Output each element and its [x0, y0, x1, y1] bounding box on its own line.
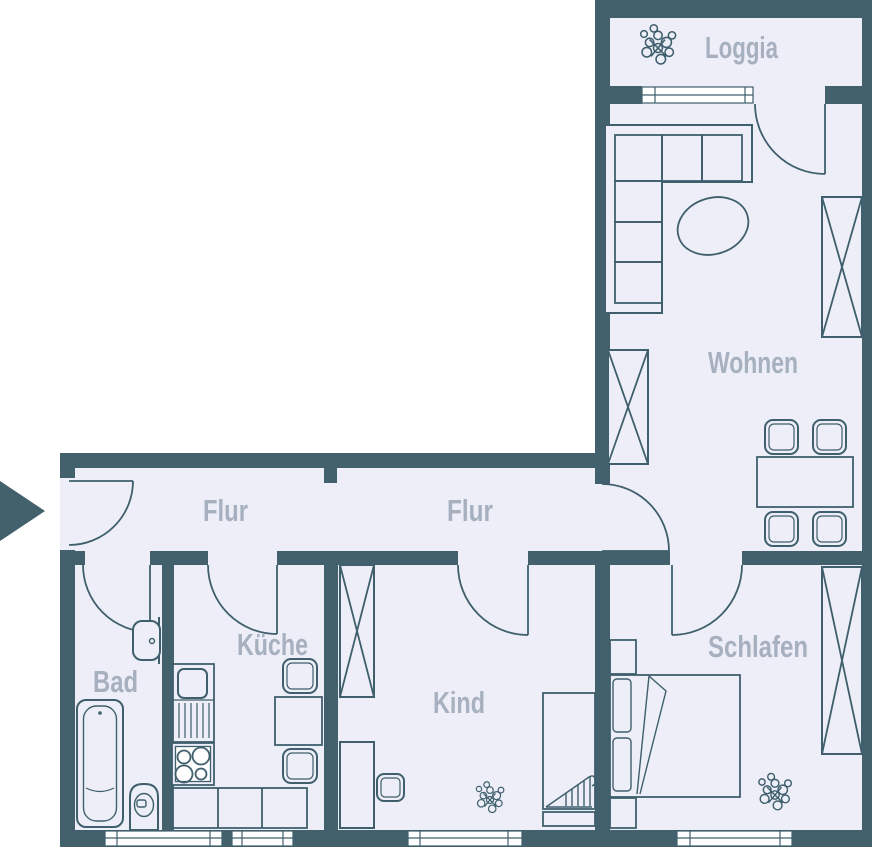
wall-top: [595, 0, 872, 18]
dining-table: [757, 457, 853, 507]
wall-kueche-kind: [324, 565, 338, 830]
room-label-flur-rechts: Flur: [447, 493, 493, 528]
nightstand: [610, 640, 636, 674]
room-label-schlafen: Schlafen: [708, 629, 808, 664]
room-label-flur-links: Flur: [203, 493, 248, 528]
room-label-kueche: Küche: [237, 627, 308, 662]
stove: [172, 743, 214, 785]
room-label-loggia: Loggia: [705, 30, 779, 65]
wardrobe: [822, 197, 862, 337]
wall-pillar: [324, 468, 337, 483]
desk: [340, 742, 374, 828]
room-label-bad: Bad: [93, 664, 138, 699]
room-label-wohnen: Wohnen: [708, 345, 798, 380]
window-schlafen: [677, 831, 792, 846]
wall-mid-seg2: [150, 551, 208, 565]
wardrobe: [822, 567, 862, 754]
kitchen-sink-unit: [173, 664, 214, 742]
wall-loggia-stub-right: [825, 86, 862, 104]
double-bed: [610, 675, 740, 797]
nightstand: [610, 798, 636, 828]
window-kueche: [232, 831, 293, 846]
room-label-kind: Kind: [433, 685, 485, 720]
wall-mid-seg1: [60, 551, 85, 565]
window-loggia: [642, 87, 753, 103]
bathroom-sink: [133, 617, 160, 664]
wall-flur-top: [60, 453, 610, 468]
wall-left-outer-lower: [60, 550, 75, 847]
wall-loggia-stub-left: [610, 86, 642, 104]
toilet: [130, 784, 158, 830]
floor-plan: Loggia Wohnen Flur Flur Bad Küche Kind S…: [0, 0, 872, 847]
window-bad: [105, 831, 222, 846]
entrance-arrow-icon: [0, 481, 45, 541]
floor-plan-svg: Loggia Wohnen Flur Flur Bad Küche Kind S…: [0, 0, 872, 847]
wall-mid-seg4: [528, 551, 670, 565]
wardrobe: [340, 565, 374, 697]
bathtub: [77, 700, 123, 827]
wall-left-outer-upper: [60, 453, 75, 478]
wall-mid-seg5: [742, 551, 872, 565]
wall-right: [862, 0, 872, 847]
wall-mid-seg3: [277, 551, 458, 565]
child-bed: [543, 693, 595, 826]
wall-left-column-lower: [595, 551, 610, 847]
wardrobe: [608, 350, 648, 464]
kitchen-counter: [173, 788, 307, 828]
window-kind: [408, 831, 522, 846]
kitchen-table: [275, 697, 322, 745]
